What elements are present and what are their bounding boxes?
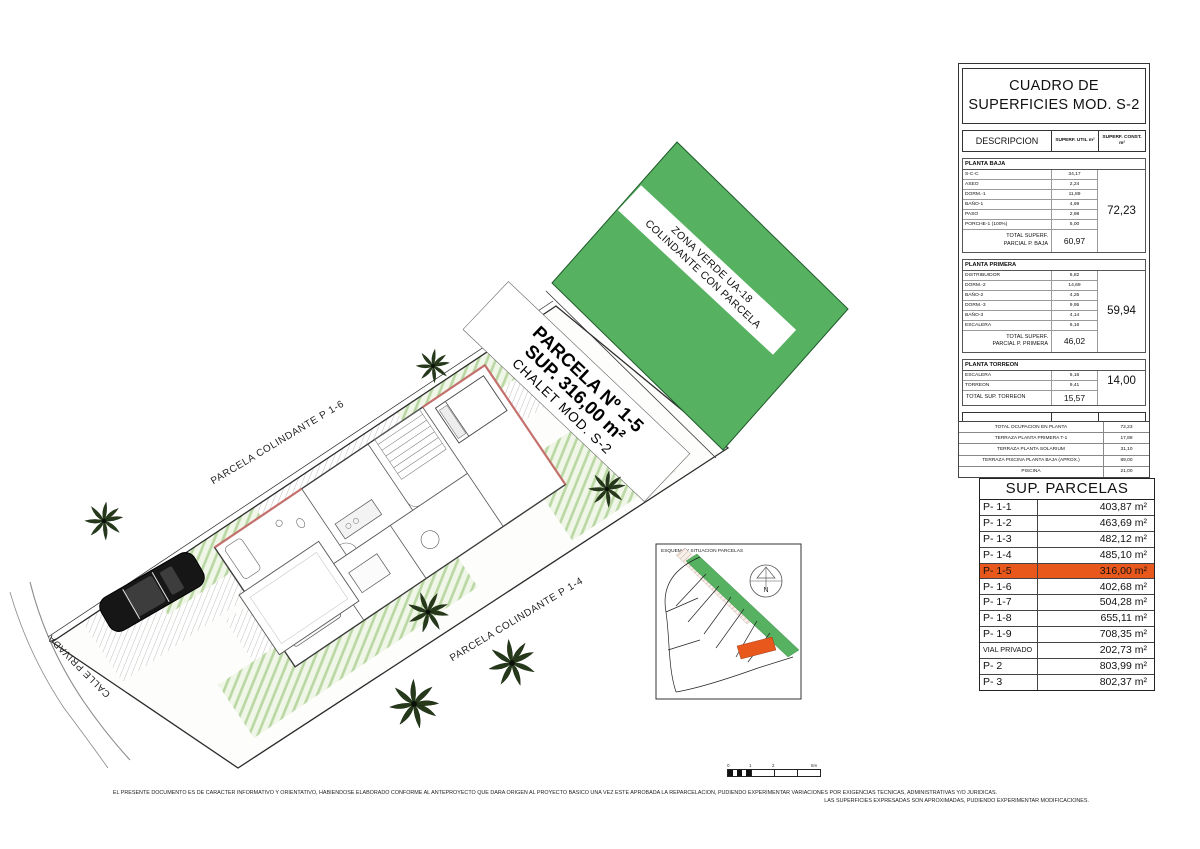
parcel-area-value: 316,00 m² [1038,564,1154,579]
parcel-row: P- 1-3482,12 m² [980,532,1154,548]
floor-section-header: PLANTA PRIMERA [963,260,1145,271]
scale-tick: 0 [727,763,730,768]
parcel-row: VIAL PRIVADO202,73 m² [980,643,1154,659]
section-total-label: TOTAL SUPERF. PARCIAL P. BAJA [963,230,1051,251]
floor-section-header: PLANTA BAJA [963,159,1145,170]
parcel-row: P- 1-7504,28 m² [980,595,1154,611]
room-area-value: 34,17 [1051,170,1098,180]
parcel-area-value: 708,35 m² [1038,627,1154,642]
parcel-area-value: 202,73 m² [1038,643,1154,658]
parcel-area-value: 403,87 m² [1038,500,1154,515]
disclaimer-line-1: EL PRESENTE DOCUMENTO ES DE CARACTER INF… [21,789,1089,797]
parcel-row: P- 1-8655,11 m² [980,611,1154,627]
svg-text:N: N [763,587,768,594]
header-superf-util: SUPERF. UTIL m² [1051,131,1098,151]
parcel-area-value: 482,12 m² [1038,532,1154,547]
section-planta-baja: PLANTA BAJA72,23S-C-C34,17ASEO2,24DORM.-… [962,158,1146,252]
occupancy-label: TERRAZA PLANTA SOLARIUM [959,444,1103,454]
parcel-row: P- 3802,37 m² [980,675,1154,690]
plan-sheet: ZONA VERDE UA-18 COLINDANTE CON PARCELA [0,0,1200,849]
section-const-total: 59,94 [1098,271,1145,352]
room-area-value: 6,16 [1051,321,1098,331]
room-area-value: 4,69 [1051,200,1098,210]
room-label: DORM.-3 [963,301,1051,311]
parcel-label: P- 2 [980,659,1038,674]
occupancy-value: 89,00 [1103,456,1149,466]
room-label: DORM.-1 [963,190,1051,200]
room-area-value: 11,89 [1051,190,1098,200]
occupancy-label: PISCINA [959,467,1103,477]
header-descripcion: DESCRIPCION [963,131,1051,151]
scale-bar-blocks [727,769,821,777]
parcel-label: VIAL PRIVADO [980,643,1038,658]
room-area-value: 2,98 [1051,210,1098,220]
section-total-label: TOTAL SUP. TORREON [963,391,1051,405]
parcel-row-highlighted: P- 1-5316,00 m² [980,564,1154,580]
occupancy-value: 31,10 [1103,444,1149,454]
surface-table-header: DESCRIPCION SUPERF. UTIL m² SUPERF. CONS… [962,130,1146,152]
disclaimer-line-2: LAS SUPERFICIES EXPRESADAS SON APROXIMAD… [21,797,1089,805]
scale-bar-labels: 0 1 2 5m [727,763,823,769]
room-label: ESCALERA [963,321,1051,331]
room-label: DORM.-2 [963,281,1051,291]
occupancy-row: TERRAZA PLANTA PRIMERA T-117,88 [959,433,1149,444]
section-total-label: TOTAL SUPERF. PARCIAL P. PRIMERA [963,331,1051,352]
floor-section-header: PLANTA TORREON [963,360,1145,371]
room-area-value: 6,82 [1051,271,1098,281]
svg-text:ESQUEMA Y SITUACION PARCELAS: ESQUEMA Y SITUACION PARCELAS [661,548,743,554]
scale-tick: 5m [811,763,817,768]
occupancy-label: TERRAZA PLANTA PRIMERA T-1 [959,433,1103,443]
parcel-row: P- 2803,99 m² [980,659,1154,675]
occupancy-row: TERRAZA PLANTA SOLARIUM31,10 [959,444,1149,455]
room-label: BAÑO-1 [963,200,1051,210]
scale-tick: 1 [749,763,752,768]
room-area-value: 6,16 [1051,371,1098,381]
room-label: PORCHE-1 (100%) [963,220,1051,230]
parcel-label: P- 1-5 [980,564,1038,579]
north-compass-icon: N [750,565,782,597]
parcel-label: P- 1-3 [980,532,1038,547]
occupancy-table: TOTAL OCUPACION EN PLANTA72,23TERRAZA PL… [958,421,1150,478]
room-area-value: 5,00 [1051,220,1098,230]
section-const-total: 72,23 [1098,170,1145,251]
parcels-table: SUP. PARCELAS P- 1-1403,87 m²P- 1-2463,6… [979,478,1155,691]
occupancy-value: 72,23 [1103,422,1149,432]
section-const-total: 14,00 [1098,371,1145,391]
room-area-value: 4,14 [1051,311,1098,321]
room-area-value: 9,41 [1051,381,1098,391]
parcel-label: P- 1-8 [980,611,1038,626]
header-superf-const: SUPERF. CONST. m² [1098,131,1145,151]
room-label: S-C-C [963,170,1051,180]
parcel-row: P- 1-2463,69 m² [980,516,1154,532]
room-label: BAÑO-2 [963,291,1051,301]
room-label: ESCALERA [963,371,1051,381]
occupancy-label: TOTAL OCUPACION EN PLANTA [959,422,1103,432]
room-area-value: 9,95 [1051,301,1098,311]
section-planta-torreon: PLANTA TORREON14,00ESCALERA6,16TORREON9,… [962,359,1146,406]
occupancy-row: TERRAZA PISCINA PLANTA BAJA (APROX.)89,0… [959,456,1149,467]
palm-tree-icon [379,669,448,738]
surface-table-title: CUADRO DE SUPERFICIES MOD. S-2 [962,68,1146,124]
room-label: BAÑO-3 [963,311,1051,321]
parcel-row: P- 1-1403,87 m² [980,500,1154,516]
parcel-row: P- 1-9708,35 m² [980,627,1154,643]
occupancy-value: 17,88 [1103,433,1149,443]
room-label: PASO [963,210,1051,220]
room-label: TORREON [963,381,1051,391]
parcel-label: P- 3 [980,675,1038,690]
room-area-value: 4,26 [1051,291,1098,301]
room-label: ASEO [963,180,1051,190]
room-area-value: 2,24 [1051,180,1098,190]
parcel-area-value: 803,99 m² [1038,659,1154,674]
occupancy-label: TERRAZA PISCINA PLANTA BAJA (APROX.) [959,456,1103,466]
occupancy-value: 21,00 [1103,467,1149,477]
palm-tree-icon [483,634,541,692]
parcel-area-value: 485,10 m² [1038,548,1154,563]
occupancy-row: TOTAL OCUPACION EN PLANTA72,23 [959,422,1149,433]
parcel-area-value: 402,68 m² [1038,579,1154,594]
parcel-label: P- 1-4 [980,548,1038,563]
parcel-label: P- 1-7 [980,595,1038,610]
room-label: DISTRIBUIDOR [963,271,1051,281]
parcel-area-value: 504,28 m² [1038,595,1154,610]
parcel-label: P- 1-6 [980,579,1038,594]
section-planta-primera: PLANTA PRIMERA59,94DISTRIBUIDOR6,82DORM.… [962,259,1146,353]
section-total-value: 46,02 [1051,331,1098,352]
section-total-value: 15,57 [1051,391,1098,405]
palm-tree-icon [85,502,123,540]
scale-bar: 0 1 2 5m [727,763,823,779]
surface-table: CUADRO DE SUPERFICIES MOD. S-2 DESCRIPCI… [958,63,1150,447]
parcel-area-value: 463,69 m² [1038,516,1154,531]
parcels-table-title: SUP. PARCELAS [980,479,1154,500]
parcel-label: P- 1-9 [980,627,1038,642]
parcel-area-value: 802,37 m² [1038,675,1154,690]
palm-tree-icon [416,349,449,383]
parcel-label: P- 1-1 [980,500,1038,515]
section-total-value: 60,97 [1051,230,1098,251]
room-area-value: 14,69 [1051,281,1098,291]
occupancy-row: PISCINA21,00 [959,467,1149,477]
parcel-row: P- 1-4485,10 m² [980,548,1154,564]
disclaimer: EL PRESENTE DOCUMENTO ES DE CARACTER INF… [21,789,1089,805]
parcel-row: P- 1-6402,68 m² [980,579,1154,595]
inset-map: ESQUEMA Y SITUACION PARCELAS N [656,544,801,699]
parcel-area-value: 655,11 m² [1038,611,1154,626]
parcel-label: P- 1-2 [980,516,1038,531]
scale-tick: 2 [772,763,775,768]
